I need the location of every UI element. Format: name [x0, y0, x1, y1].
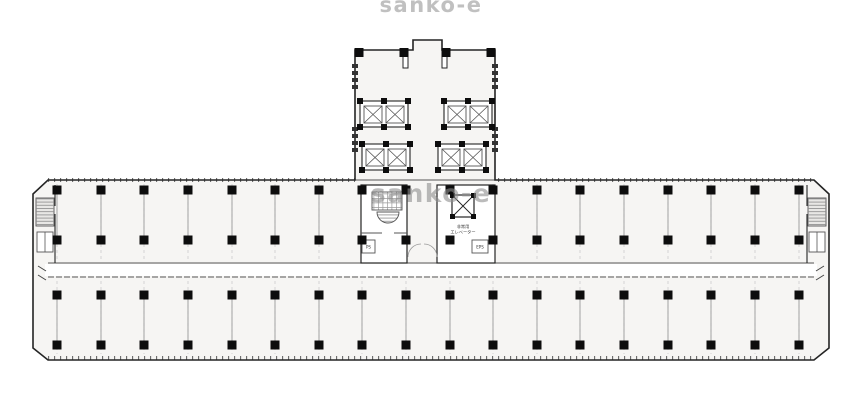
bank-column [357, 98, 363, 104]
facade-fin [352, 141, 358, 145]
column-marker [53, 291, 62, 300]
column-marker [533, 186, 542, 195]
column-marker [707, 236, 716, 245]
bank-column [407, 141, 413, 147]
column-marker [140, 341, 149, 350]
column-marker [533, 236, 542, 245]
facade-fin [352, 134, 358, 138]
bank-column [381, 98, 387, 104]
facade-fin [492, 141, 498, 145]
column-marker [795, 236, 804, 245]
tower-column [355, 48, 364, 57]
electric-shaft-label: EPS [476, 245, 484, 250]
column-marker [446, 236, 455, 245]
bank-column [357, 124, 363, 130]
column-marker [576, 186, 585, 195]
column-marker [446, 186, 455, 195]
tower-column [487, 48, 496, 57]
shaft-column [471, 193, 476, 198]
column-marker [795, 186, 804, 195]
facade-fin [352, 85, 358, 89]
column-marker [315, 186, 324, 195]
facade-fin [492, 148, 498, 152]
bank-column [383, 141, 389, 147]
column-marker [358, 236, 367, 245]
bank-column [435, 167, 441, 173]
bank-column [459, 141, 465, 147]
column-marker [402, 291, 411, 300]
column-marker [446, 291, 455, 300]
column-marker [97, 186, 106, 195]
tower-column [400, 48, 409, 57]
column-marker [184, 291, 193, 300]
facade-fin [492, 78, 498, 82]
column-marker [489, 236, 498, 245]
bank-column [359, 167, 365, 173]
column-marker [751, 236, 760, 245]
column-marker [664, 186, 673, 195]
bank-column [441, 98, 447, 104]
column-marker [446, 341, 455, 350]
column-marker [489, 291, 498, 300]
column-marker [97, 341, 106, 350]
facade-fin [492, 85, 498, 89]
column-marker [620, 291, 629, 300]
bank-column [483, 167, 489, 173]
column-marker [402, 236, 411, 245]
column-marker [402, 186, 411, 195]
column-marker [620, 236, 629, 245]
column-marker [228, 186, 237, 195]
column-marker [315, 236, 324, 245]
toilet-stalls [372, 192, 402, 210]
column-marker [271, 341, 280, 350]
column-marker [184, 236, 193, 245]
facade-fin [492, 71, 498, 75]
bank-column [483, 141, 489, 147]
column-marker [271, 291, 280, 300]
column-marker [358, 186, 367, 195]
shaft-column [471, 214, 476, 219]
bank-column [441, 124, 447, 130]
facade-fin [352, 71, 358, 75]
bank-column [405, 124, 411, 130]
column-marker [97, 291, 106, 300]
column-marker [315, 341, 324, 350]
column-marker [664, 291, 673, 300]
bank-column [383, 167, 389, 173]
column-marker [751, 186, 760, 195]
facade-fin [492, 134, 498, 138]
column-marker [576, 236, 585, 245]
column-marker [489, 341, 498, 350]
bank-column [489, 124, 495, 130]
column-marker [271, 186, 280, 195]
column-marker [140, 186, 149, 195]
column-marker [53, 186, 62, 195]
column-marker [751, 341, 760, 350]
tower-column [442, 48, 451, 57]
column-marker [184, 186, 193, 195]
column-marker [358, 341, 367, 350]
column-marker [271, 236, 280, 245]
stair-treads [36, 198, 54, 226]
column-marker [53, 341, 62, 350]
floor-plan-svg: 非常用エレベーターPSEPS [0, 0, 862, 400]
column-marker [315, 291, 324, 300]
corridor-floor [45, 264, 817, 276]
column-marker [576, 291, 585, 300]
column-marker [620, 341, 629, 350]
emergency-elevator-label: エレベーター [450, 229, 475, 236]
column-marker [184, 341, 193, 350]
column-marker [707, 291, 716, 300]
column-marker [489, 186, 498, 195]
column-marker [751, 291, 760, 300]
stair-treads [808, 198, 826, 226]
column-marker [140, 236, 149, 245]
bank-column [359, 141, 365, 147]
column-marker [358, 291, 367, 300]
facade-fin [492, 64, 498, 68]
bank-column [405, 98, 411, 104]
bank-column [489, 98, 495, 104]
column-marker [140, 291, 149, 300]
column-marker [576, 341, 585, 350]
column-marker [795, 341, 804, 350]
facade-fin [352, 64, 358, 68]
facade-fin [352, 148, 358, 152]
bank-column [435, 141, 441, 147]
facade-fin [352, 78, 358, 82]
building-footprint [33, 40, 829, 360]
column-marker [707, 341, 716, 350]
column-marker [228, 236, 237, 245]
column-marker [795, 291, 804, 300]
column-marker [228, 291, 237, 300]
column-marker [620, 186, 629, 195]
column-marker [228, 341, 237, 350]
bank-column [407, 167, 413, 173]
pipe-shaft-label: PS [366, 245, 371, 250]
column-marker [664, 236, 673, 245]
bank-column [381, 124, 387, 130]
shaft-column [450, 214, 455, 219]
scan-page: 非常用エレベーターPSEPS sanko-e sanko-e [0, 0, 862, 400]
column-marker [402, 341, 411, 350]
column-marker [97, 236, 106, 245]
bank-column [465, 98, 471, 104]
column-marker [664, 341, 673, 350]
bank-column [465, 124, 471, 130]
bank-column [459, 167, 465, 173]
column-marker [53, 236, 62, 245]
column-marker [533, 291, 542, 300]
column-marker [707, 186, 716, 195]
column-marker [533, 341, 542, 350]
